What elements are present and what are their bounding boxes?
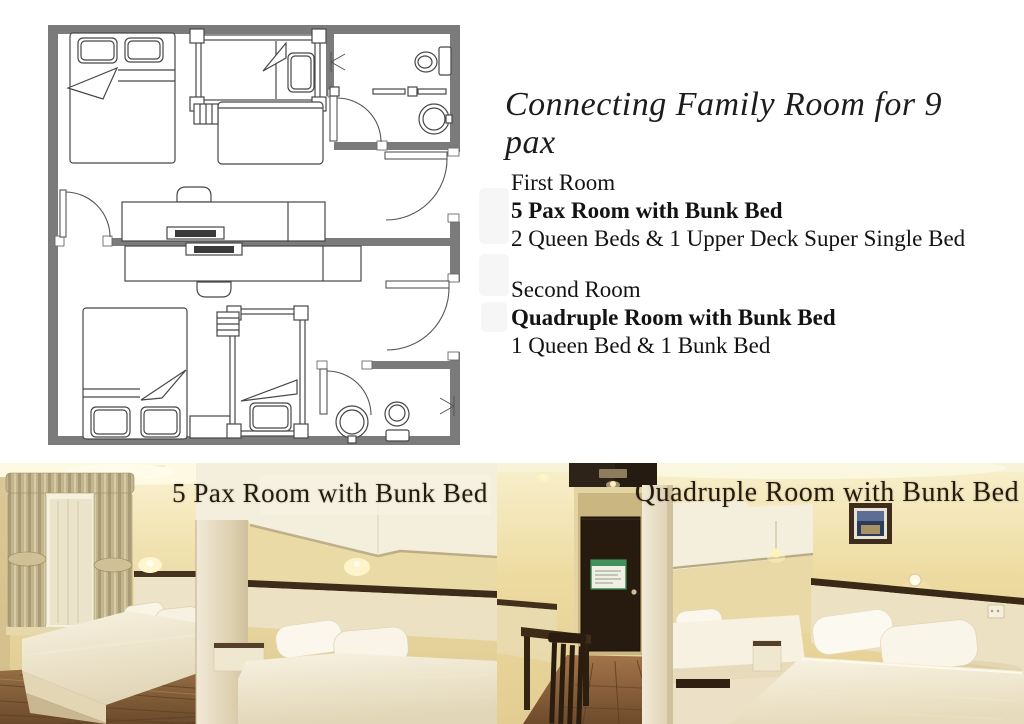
photo-caption-right: Quadruple Room with Bunk Bed [630, 476, 1024, 510]
bunk-bed-icon [190, 29, 326, 164]
photo-caption-left: 5 Pax Room with Bunk Bed [146, 476, 514, 510]
room2-furniture [83, 243, 361, 439]
room1-entry-door-icon [385, 152, 447, 159]
toilet-icon [385, 402, 409, 441]
partition-icon [330, 87, 446, 96]
room2-block: Second Room Quadruple Room with Bunk Bed… [511, 276, 1011, 360]
queen-bed-icon [83, 308, 187, 439]
bunk-support-panel [642, 485, 673, 724]
room1-block: First Room 5 Pax Room with Bunk Bed 2 Qu… [511, 169, 1011, 253]
wall-lamp-icon [354, 561, 360, 567]
desk-tv-icon [122, 187, 325, 241]
bathroom2-door-icon [320, 369, 327, 414]
watermark-ghost [479, 188, 509, 332]
door-notice-sign [591, 560, 626, 589]
bathroom1 [330, 47, 452, 134]
side-table-icon [190, 416, 230, 438]
room2-entry-door-icon [386, 281, 449, 288]
nightstand [753, 641, 781, 671]
bathroom1-door-icon [330, 96, 337, 141]
toilet-icon [415, 47, 451, 75]
connecting-door-icon [60, 190, 66, 237]
room2-label: Second Room [511, 276, 1011, 304]
sink-icon [419, 104, 452, 134]
room1-label: First Room [511, 169, 1011, 197]
room-info: First Room 5 Pax Room with Bunk Bed 2 Qu… [511, 169, 1011, 360]
bunk-bed-icon [217, 306, 308, 438]
room1-name: 5 Pax Room with Bunk Bed [511, 197, 1011, 225]
hotel-room-flyer: Connecting Family Room for 9 pax First R… [0, 0, 1024, 724]
desk-tv-icon [125, 243, 361, 297]
page-title: Connecting Family Room for 9 pax [505, 86, 985, 162]
wall-lamp-icon [147, 560, 154, 567]
sheer-curtain [50, 499, 92, 625]
vent-icon [599, 469, 627, 478]
room1-beds: 2 Queen Beds & 1 Upper Deck Super Single… [511, 225, 1011, 253]
room1-furniture [68, 29, 326, 241]
window [6, 473, 134, 635]
power-outlet-icon [988, 605, 1004, 618]
door-handle-icon [631, 589, 636, 594]
room2-beds: 1 Queen Bed & 1 Bunk Bed [511, 332, 1011, 360]
room2-name: Quadruple Room with Bunk Bed [511, 304, 1011, 332]
queen-bed-icon [68, 33, 175, 163]
